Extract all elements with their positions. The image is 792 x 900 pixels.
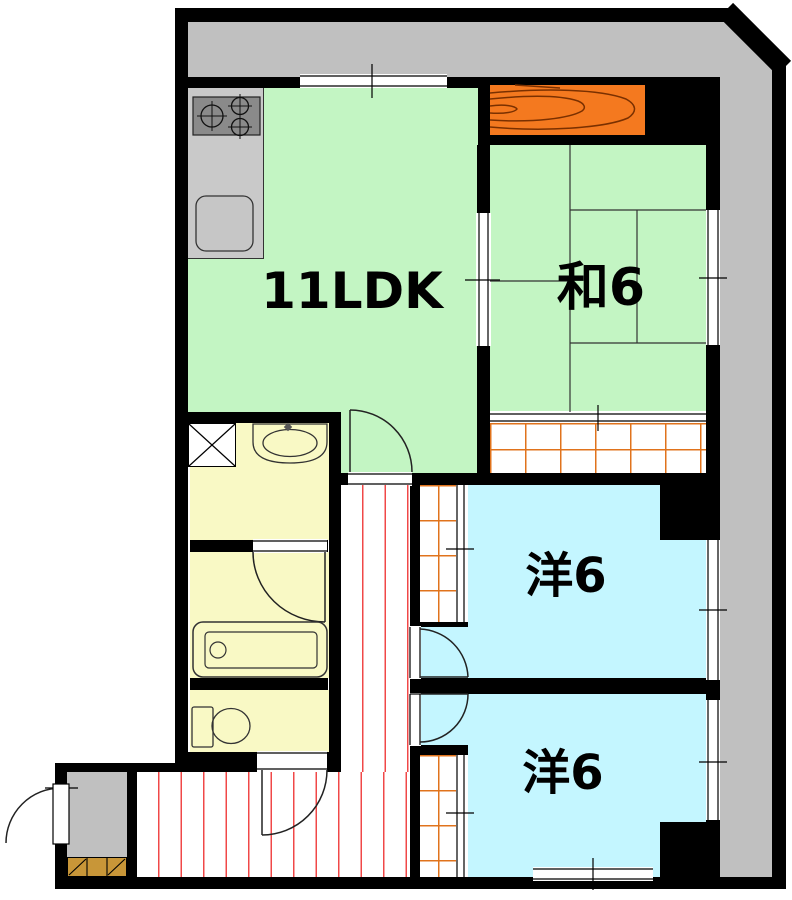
- door-opening-bath: [253, 539, 327, 553]
- label-western-room-upper: 洋6: [481, 552, 651, 600]
- wall-outer-bottom: [55, 877, 786, 889]
- room-bathroom: [190, 552, 329, 678]
- shoe-cabinet: [67, 857, 127, 877]
- closet-japanese: [490, 423, 706, 473]
- kitchen-counter: [188, 88, 264, 259]
- window-upper-right: [706, 540, 720, 680]
- window-lower-right: [706, 700, 720, 820]
- corridor-vertical: [341, 485, 410, 772]
- label-japanese-room: 和6: [516, 262, 686, 314]
- washing-machine-pan: [188, 423, 236, 467]
- closet-upper-grid: [420, 485, 456, 622]
- door-opening-lower-room: [409, 693, 421, 746]
- floor-plan: 11LDK 和6 洋6 洋6: [0, 0, 792, 900]
- wall-outer-top: [175, 8, 735, 22]
- window-japanese-right: [706, 210, 720, 345]
- door-opening-toilet: [257, 751, 327, 772]
- window-top: [300, 74, 447, 88]
- label-western-room-lower: 洋6: [478, 749, 648, 797]
- futon-storage: [490, 85, 645, 135]
- wall-entrance-top: [55, 763, 187, 772]
- closet-lower-grid: [420, 755, 456, 877]
- pillar-lower: [660, 822, 720, 877]
- genkan-floor: [67, 772, 127, 857]
- balcony-top: [188, 22, 726, 77]
- wall-entrance-left: [55, 772, 67, 888]
- door-opening-upper-room: [409, 626, 421, 679]
- balcony-right: [720, 68, 772, 877]
- pillar-upper: [660, 475, 720, 540]
- room-toilet: [190, 690, 330, 752]
- wall-vestibule-lower: [420, 745, 468, 755]
- label-ldk: 11LDK: [227, 266, 477, 316]
- entrance-door-arc: [6, 788, 61, 843]
- wall-corridor-left: [329, 412, 341, 772]
- wall-washroom-top: [188, 412, 341, 423]
- door-opening-ldk: [348, 472, 412, 486]
- wall-genkan-divider: [127, 772, 137, 877]
- wall-outer-left: [175, 8, 188, 763]
- window-bottom: [533, 867, 653, 881]
- wall-bath-toilet: [190, 678, 328, 690]
- wall-room-divider: [410, 678, 720, 694]
- corridor-bottom: [137, 772, 410, 877]
- wall-outer-right: [772, 58, 786, 888]
- room-ldk-lower: [341, 412, 478, 473]
- sliding-door-ldk-japanese: [476, 213, 491, 346]
